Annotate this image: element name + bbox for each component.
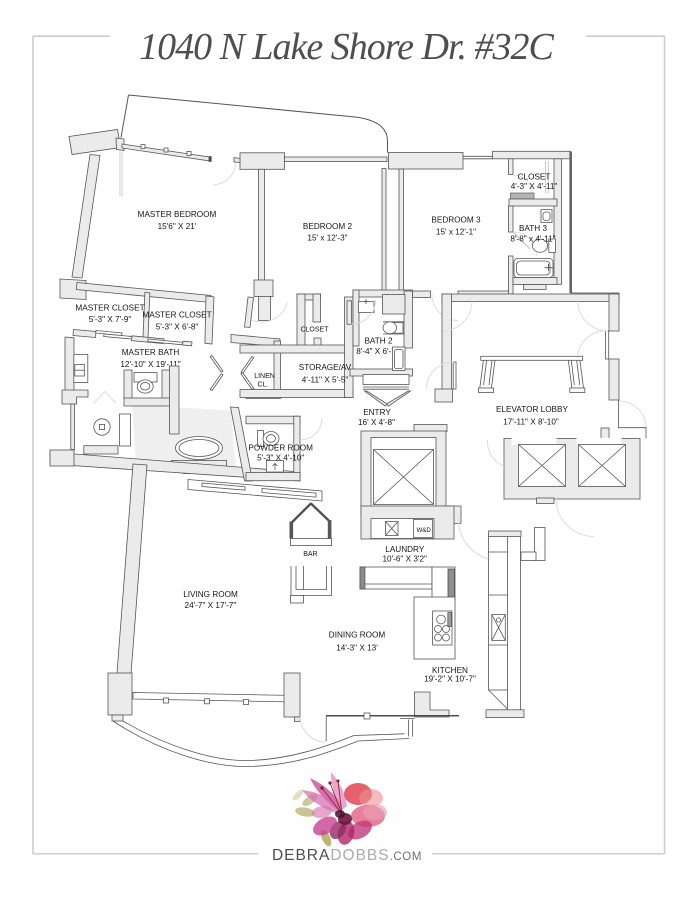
svg-text:15'6" X 21': 15'6" X 21'	[158, 222, 197, 231]
svg-text:MASTER BEDROOM: MASTER BEDROOM	[138, 210, 217, 219]
svg-text:24'-7" X 17'-7": 24'-7" X 17'-7"	[185, 601, 237, 610]
svg-text:CL.: CL.	[258, 382, 269, 389]
svg-text:BEDROOM 3: BEDROOM 3	[431, 216, 481, 225]
svg-text:LIVING ROOM: LIVING ROOM	[183, 590, 238, 599]
svg-text:17'-11" X 8'-10": 17'-11" X 8'-10"	[503, 418, 559, 427]
svg-text:15' x 12'-1": 15' x 12'-1"	[436, 228, 476, 237]
svg-text:LINEN: LINEN	[254, 373, 275, 380]
svg-text:STORAGE/AV: STORAGE/AV	[299, 363, 352, 372]
svg-text:8'-8" x 4'-11": 8'-8" x 4'-11"	[510, 235, 555, 244]
svg-text:BAR: BAR	[303, 551, 317, 558]
svg-text:14'-3" X 13': 14'-3" X 13'	[336, 644, 378, 653]
svg-text:LAUNDRY: LAUNDRY	[385, 545, 425, 554]
svg-text:5'-3" X 4'-10": 5'-3" X 4'-10"	[257, 453, 304, 462]
svg-text:CLOSET: CLOSET	[300, 327, 329, 334]
svg-text:ENTRY: ENTRY	[363, 408, 391, 417]
svg-text:MASTER CLOSET: MASTER CLOSET	[142, 311, 211, 320]
svg-text:W&D: W&D	[416, 527, 431, 534]
svg-text:4'-3" X 4'-11": 4'-3" X 4'-11"	[511, 182, 558, 191]
svg-text:5'-3" X 7'-9": 5'-3" X 7'-9"	[89, 315, 132, 324]
svg-text:16' X 4'-8": 16' X 4'-8"	[358, 418, 395, 427]
svg-text:BEDROOM 2: BEDROOM 2	[303, 222, 353, 231]
svg-text:15' x 12'-3": 15' x 12'-3"	[307, 234, 347, 243]
svg-text:BATH 3: BATH 3	[519, 224, 548, 233]
svg-text:5'-3" X 6'-8": 5'-3" X 6'-8"	[156, 323, 199, 332]
svg-text:CLOSET: CLOSET	[518, 173, 551, 182]
svg-text:POWDER ROOM: POWDER ROOM	[248, 444, 313, 453]
svg-text:10'-6" X 3'2": 10'-6" X 3'2"	[382, 555, 427, 564]
svg-text:BATH 2: BATH 2	[364, 337, 393, 346]
svg-text:4'-11" X 5'-5": 4'-11" X 5'-5"	[302, 376, 349, 385]
svg-text:MASTER BATH: MASTER BATH	[122, 348, 180, 357]
svg-text:1040 N Lake Shore Dr. #32C: 1040 N Lake Shore Dr. #32C	[139, 26, 554, 68]
svg-text:19'-2" X 10'-7": 19'-2" X 10'-7"	[424, 674, 476, 683]
svg-text:DINING ROOM: DINING ROOM	[329, 631, 386, 640]
svg-text:ELEVATOR LOBBY: ELEVATOR LOBBY	[496, 405, 568, 414]
svg-text:MASTER CLOSET: MASTER CLOSET	[75, 304, 144, 313]
